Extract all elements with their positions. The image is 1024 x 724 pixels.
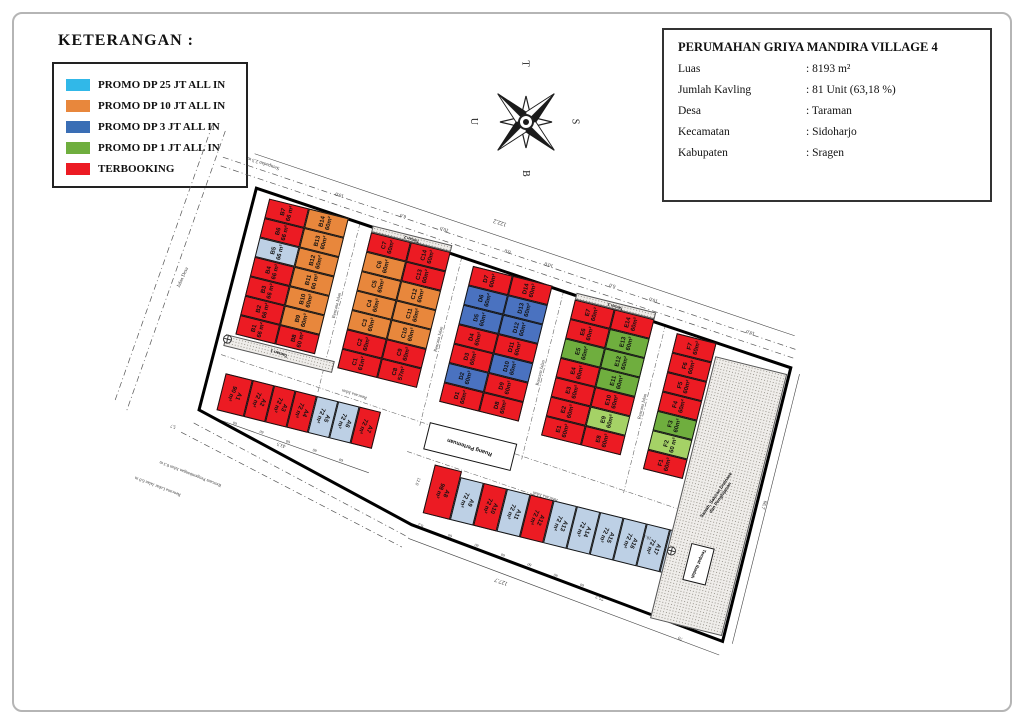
lot-label: A10 72 m² — [481, 497, 499, 517]
lot-label: B10 60m² — [299, 292, 315, 309]
lot-label: A4 72 m² — [292, 402, 310, 422]
lot-label: D6 60m² — [478, 292, 494, 309]
lot-label: A1 90 m² — [225, 385, 243, 405]
lot-label: A9 72 m² — [458, 492, 476, 512]
info-value: : Sragen — [806, 147, 844, 159]
lot-label: D14 60m² — [522, 282, 538, 299]
compass-rose: T U S B — [474, 60, 578, 180]
project-info-box: PERUMAHAN GRIYA MANDIRA VILLAGE 4 Luas :… — [662, 28, 992, 202]
lot-label: A14 72 m² — [574, 521, 592, 541]
compass-label-t: T — [520, 60, 531, 66]
lot-label: A17 72 m² — [644, 538, 662, 558]
compass-label-s: S — [569, 119, 580, 125]
lot-label: B4 66 m² — [264, 262, 281, 280]
lot-label: A7 72 m² — [356, 418, 374, 438]
lot-label: F1 60m² — [657, 456, 673, 473]
lot-label: E1 60m² — [555, 422, 571, 439]
lot-label: C4 60m² — [366, 297, 382, 314]
lot-label: D9 60m² — [498, 379, 514, 396]
lot-label: E7 60m² — [584, 306, 600, 323]
lot-label: C7 60m² — [381, 239, 397, 256]
lot-label: F3 60m² — [667, 417, 683, 434]
lot-label: A8 98 m² — [433, 482, 451, 502]
compass-star-icon — [474, 60, 578, 180]
site-plan-map: B7 66 m²B6 66 m²B5 66 m²B4 66 m²B3 66 m²… — [131, 178, 858, 723]
lot-label: D8 60m² — [493, 399, 509, 416]
lot-label: D7 60m² — [482, 272, 498, 289]
project-title: PERUMAHAN GRIYA MANDIRA VILLAGE 4 — [678, 40, 976, 55]
info-row-jumlah-kavling: Jumlah Kavling : 81 Unit (63,18 %) — [678, 84, 976, 96]
lot-label: C6 60m² — [376, 258, 392, 275]
lot-label: D10 60m² — [503, 360, 519, 377]
lot-label: D3 60m² — [463, 350, 479, 367]
lot-label: D5 60m² — [473, 311, 489, 328]
lot-label: A3 72 m² — [271, 397, 289, 417]
lot-label: C12 60m² — [411, 287, 427, 304]
lot-label: E9 60m² — [600, 413, 616, 430]
lot-label: F6 60m² — [681, 359, 697, 376]
lot-label: D12 60m² — [512, 321, 528, 338]
lot-label: F4 60m² — [672, 398, 688, 415]
lot-label: B8 60 m² — [289, 330, 306, 348]
lot-label: B11 60 m² — [304, 272, 321, 290]
info-value: : Taraman — [806, 105, 852, 117]
info-value: : Sidoharjo — [806, 126, 857, 138]
facility-label: Taman 1 — [270, 348, 289, 359]
lot-label: D11 60m² — [508, 340, 524, 357]
info-label: Kabupaten — [678, 147, 806, 159]
lot-label: B14 60m² — [318, 215, 334, 232]
lot-label: C5 60m² — [371, 277, 387, 294]
lot-label: E8 60m² — [595, 432, 611, 449]
legend-swatch-promo-dp1 — [66, 142, 90, 154]
lot-label: E12 60m² — [614, 355, 630, 372]
lot-label: E6 60m² — [579, 325, 595, 342]
info-value: : 81 Unit (63,18 %) — [806, 84, 896, 96]
legend-item-promo-dp10: PROMO DP 10 JT ALL IN — [66, 95, 246, 116]
site-plan-page: KETERANGAN : PROMO DP 25 JT ALL IN PROMO… — [0, 0, 1024, 724]
lot-label: D1 60m² — [453, 389, 469, 406]
legend-swatch-promo-dp10 — [66, 100, 90, 112]
info-value: : 8193 m² — [806, 63, 850, 75]
lot-label: C11 60m² — [406, 307, 422, 324]
lot-label: E2 60m² — [560, 403, 576, 420]
lot-label: F7 60m² — [686, 339, 702, 356]
lot-label: B12 60m² — [309, 254, 325, 271]
lot-label: C9 60m² — [396, 345, 412, 362]
lot-label: C13 60m² — [415, 268, 431, 285]
legend-label: PROMO DP 10 JT ALL IN — [98, 100, 225, 112]
info-label: Kecamatan — [678, 126, 806, 138]
lot-label: D4 60m² — [468, 330, 484, 347]
lot-label: E4 60m² — [570, 364, 586, 381]
lot-label: A11 72 m² — [504, 503, 522, 523]
lot-label: A12 72 m² — [528, 509, 546, 529]
lot-label: E10 60m² — [605, 393, 621, 410]
legend-title: KETERANGAN : — [58, 32, 194, 50]
lot-label: B13 60m² — [314, 234, 330, 251]
info-label: Luas — [678, 63, 806, 75]
legend-label: PROMO DP 25 JT ALL IN — [98, 79, 225, 91]
lot-label: E14 60m² — [624, 316, 640, 333]
legend-swatch-promo-dp25 — [66, 79, 90, 91]
lot-label: C3 60m² — [361, 316, 377, 333]
lot-label: D13 60m² — [517, 301, 533, 318]
legend-swatch-promo-dp3 — [66, 121, 90, 133]
lot-label: C2 60m² — [356, 336, 372, 353]
lot-label: B6 66 m² — [274, 223, 291, 241]
info-row-desa: Desa : Taraman — [678, 105, 976, 117]
lot-label: E5 60m² — [575, 345, 591, 362]
lot-label: A5 72 m² — [314, 407, 332, 427]
legend-swatch-terbooking — [66, 163, 90, 175]
lot-label: D2 60m² — [458, 369, 474, 386]
lot-label: C14 60m² — [420, 248, 436, 265]
lot-label: A15 72 m² — [597, 526, 615, 546]
lot-label: E13 60m² — [619, 335, 635, 352]
lot-label: E3 60m² — [565, 383, 581, 400]
lot-label: A13 72 m² — [551, 515, 569, 535]
info-row-kabupaten: Kabupaten : Sragen — [678, 147, 976, 159]
lot-label: B1 66 m² — [249, 320, 266, 338]
compass-label-u: U — [468, 118, 479, 125]
info-row-luas: Luas : 8193 m² — [678, 63, 976, 75]
compass-label-b: B — [520, 170, 531, 177]
lot-label: C1 61m² — [351, 355, 367, 372]
lot-label: B7 66 m² — [278, 204, 295, 222]
lot-label: B2 66 m² — [254, 301, 271, 319]
lot-label: C8 57m² — [391, 365, 407, 382]
facility-label: Sawah, Saluran Drainase dan Penghijauan — [699, 471, 738, 521]
info-row-kecamatan: Kecamatan : Sidoharjo — [678, 126, 976, 138]
facility-label: Ruang Pertemuan — [447, 436, 494, 457]
info-label: Jumlah Kavling — [678, 84, 806, 96]
lot-label: B5 66 m² — [269, 243, 286, 261]
legend-item-promo-dp25: PROMO DP 25 JT ALL IN — [66, 74, 246, 95]
lot-label: F2 60 m² — [662, 436, 679, 454]
lot-label: B3 66 m² — [259, 282, 276, 300]
lot-label: A16 72 m² — [621, 532, 639, 552]
lot-label: F5 60m² — [676, 378, 692, 395]
facility-label: Tempat Ibadah — [690, 549, 708, 580]
lot-label: B9 60m² — [294, 312, 310, 329]
lot-label: C10 60m² — [401, 326, 417, 343]
lot-label: E11 60m² — [610, 374, 626, 391]
lot-label: A2 72 m² — [250, 391, 268, 411]
lot-label: A6 72 m² — [335, 413, 353, 433]
info-label: Desa — [678, 105, 806, 117]
